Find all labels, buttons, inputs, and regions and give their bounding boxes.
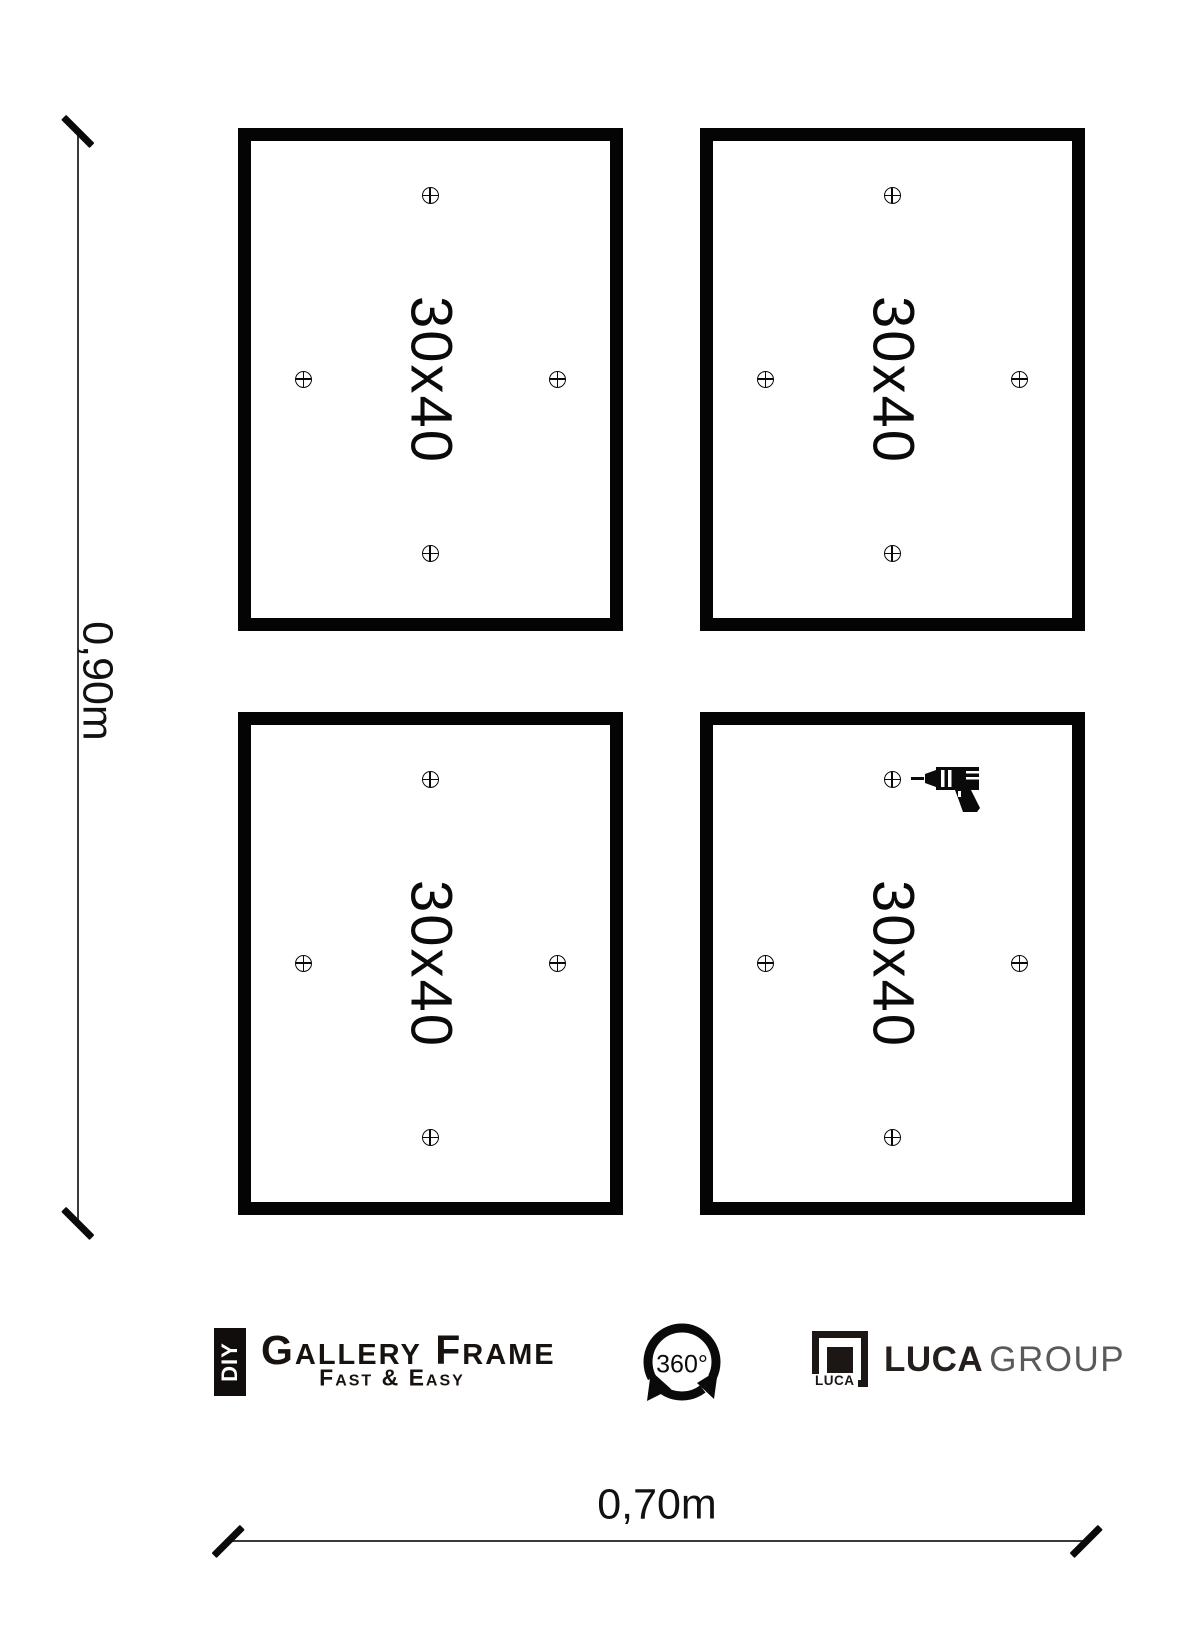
frame-size-label: 30x40 xyxy=(397,879,464,1047)
frame-bottom-left: 30x40 xyxy=(238,712,623,1215)
drill-hole-marker-icon xyxy=(422,771,439,788)
frame-size-label: 30x40 xyxy=(859,879,926,1047)
rotation-degrees-label: 360° xyxy=(656,1350,708,1379)
drill-icon xyxy=(911,762,991,812)
luca-logo-small-label: LUCA xyxy=(812,1374,858,1389)
drill-hole-marker-icon xyxy=(549,371,566,388)
drill-hole-marker-icon xyxy=(422,187,439,204)
drill-hole-marker-icon xyxy=(422,1129,439,1146)
width-dimension-label: 0,70m xyxy=(597,1481,717,1530)
drill-hole-marker-icon xyxy=(1011,371,1028,388)
frame-size-label: 30x40 xyxy=(397,295,464,463)
drill-hole-marker-icon xyxy=(884,771,901,788)
diy-badge: DIY xyxy=(214,1328,246,1396)
drill-hole-marker-icon xyxy=(884,1129,901,1146)
drill-hole-marker-icon xyxy=(884,545,901,562)
gallery-frame-drilling-template: 0,90m 30x40 30x40 30x40 30x40 xyxy=(0,0,1182,1642)
frame-top-left: 30x40 xyxy=(238,128,623,631)
height-dimension-label: 0,90m xyxy=(73,621,122,741)
width-dimension-line xyxy=(228,1540,1086,1542)
drill-hole-marker-icon xyxy=(884,187,901,204)
frame-size-label: 30x40 xyxy=(859,295,926,463)
luca-group-label: GROUP xyxy=(989,1340,1125,1379)
drill-hole-marker-icon xyxy=(1011,955,1028,972)
drill-hole-marker-icon xyxy=(549,955,566,972)
luca-name-label: LUCA xyxy=(884,1340,983,1379)
drill-hole-marker-icon xyxy=(295,371,312,388)
rotation-360-icon: 360° xyxy=(634,1314,730,1410)
frame-top-right: 30x40 xyxy=(700,128,1085,631)
drill-hole-marker-icon xyxy=(757,955,774,972)
luca-logo-inner-square xyxy=(827,1347,853,1373)
luca-logo-icon: LUCA xyxy=(812,1331,868,1387)
diy-badge-label: DIY xyxy=(217,1342,243,1382)
drill-hole-marker-icon xyxy=(757,371,774,388)
luca-group-wordmark: LUCAGROUP xyxy=(884,1342,1125,1377)
drill-hole-marker-icon xyxy=(295,955,312,972)
brand-tagline: Fast & Easy xyxy=(319,1367,465,1390)
frame-bottom-right: 30x40 xyxy=(700,712,1085,1215)
drill-hole-marker-icon xyxy=(422,545,439,562)
